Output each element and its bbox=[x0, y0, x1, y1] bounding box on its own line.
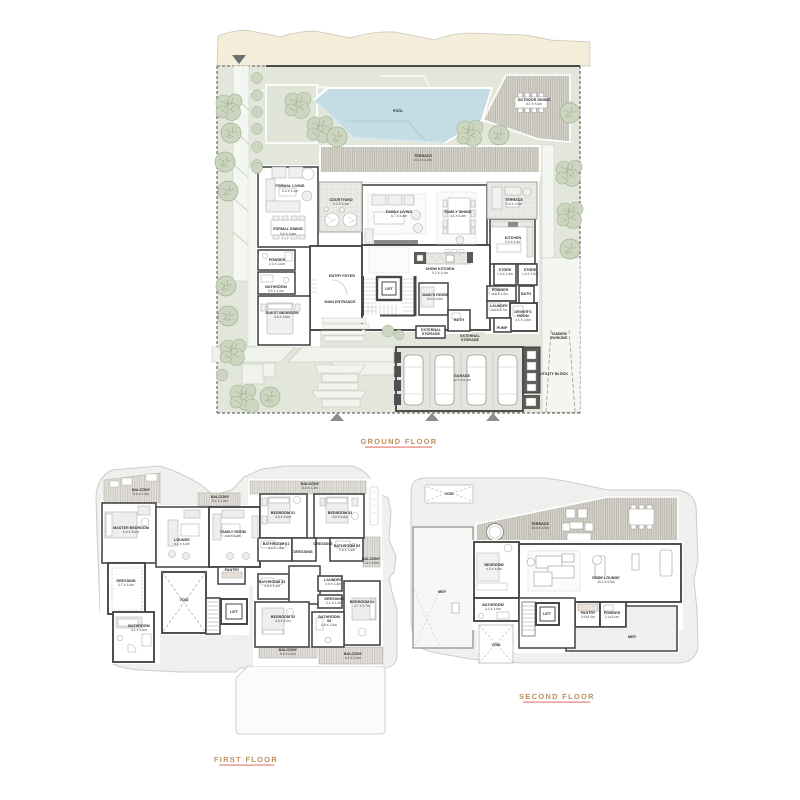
svg-text:2.5 X 2.8m: 2.5 X 2.8m bbox=[515, 318, 531, 322]
svg-text:4.2 X 1.8m: 4.2 X 1.8m bbox=[485, 607, 501, 611]
svg-text:4.9 X 6.2m: 4.9 X 6.2m bbox=[225, 534, 241, 538]
svg-text:VOID: VOID bbox=[444, 492, 453, 496]
svg-text:4.9 X 3.9m: 4.9 X 3.9m bbox=[274, 315, 290, 319]
svg-text:5.0 X 4.2m: 5.0 X 4.2m bbox=[505, 240, 521, 244]
svg-text:2.9 X 1.9m: 2.9 X 1.9m bbox=[339, 548, 355, 552]
svg-text:2.7 X 3.3m: 2.7 X 3.3m bbox=[118, 583, 134, 587]
svg-text:POOL: POOL bbox=[393, 109, 404, 113]
svg-text:5.9 X 2.5m: 5.9 X 2.5m bbox=[506, 202, 522, 206]
svg-text:2.9 X 2.3m: 2.9 X 2.3m bbox=[264, 584, 280, 588]
svg-text:STORAGE: STORAGE bbox=[461, 338, 480, 342]
svg-text:STORAGE: STORAGE bbox=[422, 332, 441, 336]
svg-text:15.2 X 5.5m: 15.2 X 5.5m bbox=[597, 580, 615, 584]
svg-text:6.5 X 1.8m: 6.5 X 1.8m bbox=[345, 656, 361, 660]
svg-text:1.8 X 1.6m: 1.8 X 1.6m bbox=[497, 272, 513, 276]
svg-text:5.1 X 1.4m: 5.1 X 1.4m bbox=[212, 499, 228, 503]
svg-text:4.6 X 6.4m: 4.6 X 6.4m bbox=[450, 214, 466, 218]
svg-text:4.9 X 4.0m: 4.9 X 4.0m bbox=[275, 515, 291, 519]
svg-text:3.5 X 1.6m: 3.5 X 1.6m bbox=[268, 289, 284, 293]
svg-text:5.6 X 3.4m: 5.6 X 3.4m bbox=[280, 232, 296, 236]
svg-text:19.6 X 4.5m: 19.6 X 4.5m bbox=[531, 526, 549, 530]
svg-text:MEP: MEP bbox=[628, 635, 637, 639]
svg-text:2.5X1.5m: 2.5X1.5m bbox=[581, 615, 595, 619]
svg-text:5.3 X 0.8m: 5.3 X 0.8m bbox=[280, 652, 296, 656]
svg-text:GROUND FLOOR: GROUND FLOOR bbox=[361, 437, 438, 446]
svg-text:FORMAL DINING: FORMAL DINING bbox=[273, 227, 303, 231]
svg-text:5.6 X 2.1m: 5.6 X 2.1m bbox=[133, 492, 149, 496]
svg-text:2.1 X 1.2m: 2.1 X 1.2m bbox=[326, 601, 342, 605]
svg-text:4.2 X 4.5m: 4.2 X 4.5m bbox=[486, 567, 502, 571]
svg-text:6.7 X 6.4m: 6.7 X 6.4m bbox=[391, 214, 407, 218]
svg-text:VOID: VOID bbox=[491, 643, 500, 647]
svg-text:4.0 X 2.0m: 4.0 X 2.0m bbox=[268, 546, 284, 550]
svg-text:FORMAL LIVING: FORMAL LIVING bbox=[275, 184, 304, 188]
svg-text:5.8 X 5.1m: 5.8 X 5.1m bbox=[282, 189, 298, 193]
svg-text:4.1 X 6.2m: 4.1 X 6.2m bbox=[174, 542, 190, 546]
svg-text:4.9 X 4.2m: 4.9 X 4.2m bbox=[275, 619, 291, 623]
svg-text:12.2 X 6.1m: 12.2 X 6.1m bbox=[453, 378, 471, 382]
svg-text:2.0 X 2.0m: 2.0 X 2.0m bbox=[269, 262, 285, 266]
svg-text:4.9 X 4.0m: 4.9 X 4.0m bbox=[332, 515, 348, 519]
svg-text:BATH: BATH bbox=[521, 292, 531, 296]
svg-text:PANTRY: PANTRY bbox=[225, 568, 240, 572]
svg-text:PARKING: PARKING bbox=[551, 336, 568, 340]
svg-text:5.8 X 5.6m: 5.8 X 5.6m bbox=[123, 530, 139, 534]
svg-text:SECOND FLOOR: SECOND FLOOR bbox=[519, 692, 595, 701]
svg-text:5.2 X 3.1m: 5.2 X 3.1m bbox=[432, 271, 448, 275]
svg-text:DRESSING: DRESSING bbox=[313, 542, 332, 546]
svg-text:1.3 X 3.5m: 1.3 X 3.5m bbox=[363, 561, 379, 565]
svg-text:FIRST FLOOR: FIRST FLOOR bbox=[214, 755, 278, 764]
svg-text:UTILITY BLOCK: UTILITY BLOCK bbox=[540, 372, 568, 376]
svg-text:2.9 X 3.3m: 2.9 X 3.3m bbox=[321, 623, 337, 627]
svg-text:9.8 X 1.2m: 9.8 X 1.2m bbox=[302, 486, 318, 490]
svg-text:8.1 X 5.9m: 8.1 X 5.9m bbox=[526, 102, 542, 106]
svg-text:2.1X2.0m: 2.1X2.0m bbox=[605, 615, 619, 619]
svg-text:3.0 X 3.8m: 3.0 X 3.8m bbox=[427, 297, 443, 301]
svg-text:3.7 X 5.7m: 3.7 X 5.7m bbox=[354, 604, 370, 608]
svg-text:2.4 X 1.7m: 2.4 X 1.7m bbox=[491, 308, 507, 312]
svg-text:4.2 X 5.1m: 4.2 X 5.1m bbox=[333, 202, 349, 206]
svg-text:4.1 X 4.8m: 4.1 X 4.8m bbox=[131, 628, 147, 632]
svg-text:BATH: BATH bbox=[454, 318, 464, 322]
svg-text:PUMP: PUMP bbox=[497, 326, 508, 330]
svg-text:LIFT: LIFT bbox=[385, 287, 394, 291]
svg-text:21.0 X 3.4m: 21.0 X 3.4m bbox=[414, 158, 432, 162]
svg-text:MAIN ENTRANCE: MAIN ENTRANCE bbox=[325, 300, 356, 304]
svg-text:3.0 X 1.5m: 3.0 X 1.5m bbox=[492, 292, 508, 296]
svg-text:1.9 X 1.8m: 1.9 X 1.8m bbox=[522, 272, 538, 276]
svg-text:0.9 X 1.3m: 0.9 X 1.3m bbox=[325, 582, 341, 586]
svg-text:ENTRY FOYER: ENTRY FOYER bbox=[329, 274, 355, 278]
svg-text:DRESSING: DRESSING bbox=[293, 550, 312, 554]
svg-text:MEP: MEP bbox=[438, 590, 447, 594]
svg-text:LIFT: LIFT bbox=[543, 612, 552, 616]
svg-text:LIFT: LIFT bbox=[230, 610, 239, 614]
svg-text:VOID: VOID bbox=[179, 598, 188, 602]
